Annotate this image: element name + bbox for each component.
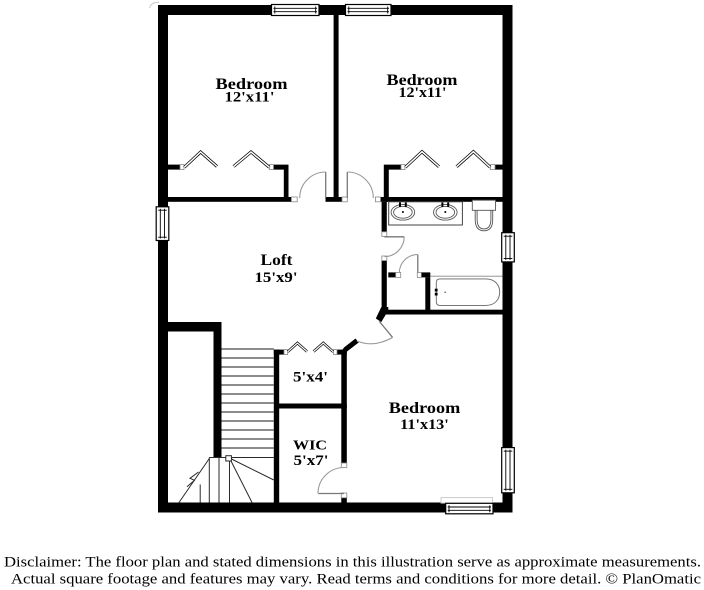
svg-text:Actual square footage and feat: Actual square footage and features may v…	[11, 572, 701, 588]
svg-text:12'x11': 12'x11'	[225, 90, 275, 106]
svg-text:11'x13': 11'x13'	[400, 417, 449, 433]
svg-text:15'x9': 15'x9'	[255, 270, 298, 286]
svg-text:5'x7': 5'x7'	[294, 453, 329, 469]
svg-text:12'x11': 12'x11'	[399, 85, 447, 101]
svg-text:Bedroom: Bedroom	[389, 400, 461, 417]
svg-text:Loft: Loft	[261, 252, 294, 269]
svg-text:5'x4': 5'x4'	[293, 370, 328, 386]
svg-text:Disclaimer: The floor plan and: Disclaimer: The floor plan and stated di…	[4, 555, 701, 571]
svg-text:WIC: WIC	[293, 438, 327, 453]
